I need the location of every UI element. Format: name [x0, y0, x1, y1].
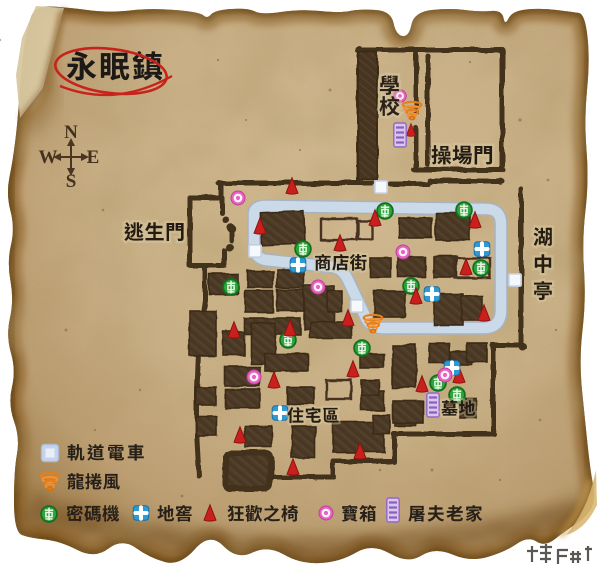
svg-text:W: W	[39, 147, 58, 168]
svg-text:E: E	[87, 147, 100, 168]
svg-text:N: N	[64, 122, 78, 143]
svg-text:S: S	[66, 171, 77, 192]
